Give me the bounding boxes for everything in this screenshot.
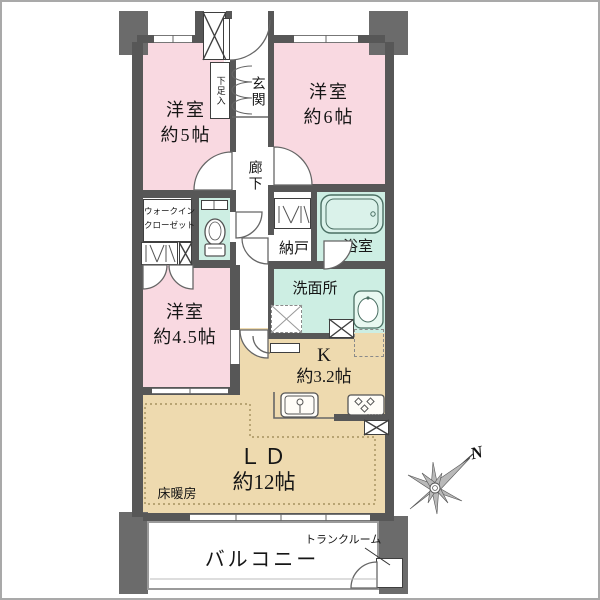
room-size: 約3.2帖 bbox=[284, 365, 364, 389]
room-label-bedroom-4-5: 洋室 約4.5帖 bbox=[145, 300, 225, 350]
balcony-window bbox=[190, 514, 370, 521]
room-name: 洋室 bbox=[145, 300, 225, 325]
floorplan: 洋室 約5帖 洋室 約6帖 洋室 約4.5帖 ＬＤ 約12帖 K 約3.2帖 玄… bbox=[0, 0, 600, 600]
compass-icon: N bbox=[408, 442, 486, 514]
window bbox=[294, 35, 358, 43]
wall bbox=[268, 261, 385, 269]
wic-line1: ウォークイン bbox=[144, 205, 191, 219]
corner-pillar bbox=[119, 512, 148, 594]
room-label-bathroom: 浴室 bbox=[336, 237, 380, 258]
entrance-door-panel bbox=[223, 18, 230, 60]
washroom-door-panel bbox=[270, 343, 300, 353]
door-arc bbox=[236, 212, 262, 238]
wic-line2: クローゼット bbox=[144, 219, 191, 233]
room-label-balcony: バルコニー bbox=[182, 546, 342, 574]
refrigerator-space bbox=[354, 329, 384, 357]
pipe-space-icon bbox=[364, 420, 389, 435]
room-size: 約5帖 bbox=[146, 123, 226, 148]
wall bbox=[268, 35, 294, 43]
room-label-bedroom-6: 洋室 約6帖 bbox=[289, 80, 369, 130]
closet-hanger-icon bbox=[141, 242, 178, 265]
window bbox=[154, 35, 192, 43]
room-label-washroom: 洗面所 bbox=[286, 279, 344, 300]
room-label-entrance: 玄関 bbox=[247, 62, 267, 122]
washing-machine-icon bbox=[271, 305, 302, 333]
wall bbox=[230, 265, 240, 330]
door-arc bbox=[242, 238, 268, 264]
room-size: 約4.5帖 bbox=[145, 325, 225, 350]
room-label-kitchen-size: 約3.2帖 bbox=[284, 365, 364, 389]
room-label-storage: 納戸 bbox=[274, 239, 314, 260]
room-label-trunk: トランクルーム bbox=[305, 533, 377, 548]
compass-north-label: N bbox=[467, 442, 485, 464]
toilet-shelf bbox=[201, 200, 228, 210]
pipe-space-icon bbox=[179, 242, 192, 265]
room-name: 洋室 bbox=[289, 80, 369, 105]
wall bbox=[385, 42, 394, 521]
wall bbox=[358, 35, 385, 43]
room-label-hallway: 廊下 bbox=[244, 148, 264, 204]
wall bbox=[137, 35, 154, 43]
room-label-shoe-cabinet: 下足入 bbox=[214, 66, 227, 116]
room-size: 約12帖 bbox=[214, 468, 314, 497]
wall bbox=[143, 190, 236, 198]
wall bbox=[230, 60, 236, 152]
wall bbox=[274, 184, 385, 192]
door-opening bbox=[230, 330, 240, 364]
wall bbox=[268, 43, 274, 147]
wall bbox=[132, 42, 143, 517]
trunk-room-box bbox=[376, 558, 403, 588]
wall bbox=[193, 260, 236, 268]
room-size: 約6帖 bbox=[289, 105, 369, 130]
entrance-door-opening bbox=[232, 11, 268, 19]
pipe-space-icon bbox=[329, 319, 354, 338]
sliding-door bbox=[152, 388, 228, 394]
room-label-ld-size: 約12帖 bbox=[214, 468, 314, 497]
room-label-wic: ウォークイン クローゼット bbox=[144, 205, 191, 232]
label-floor-heating: 床暖房 bbox=[150, 485, 204, 503]
closet-hanger-icon bbox=[274, 198, 311, 229]
